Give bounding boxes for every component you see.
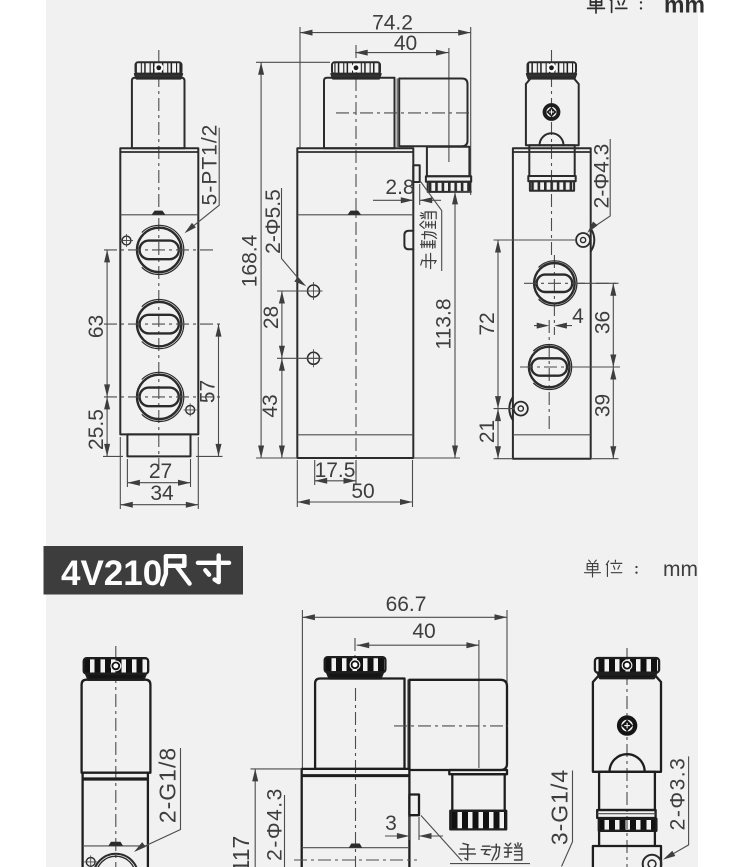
svg-text:21: 21: [476, 420, 499, 443]
svg-text:72: 72: [476, 312, 499, 335]
svg-text:mm: mm: [664, 0, 705, 18]
svg-text:40: 40: [394, 32, 417, 55]
svg-text:mm: mm: [663, 558, 698, 581]
svg-text:4V210: 4V210: [61, 554, 162, 593]
svg-text:2-G1/8: 2-G1/8: [155, 747, 181, 823]
svg-text:34: 34: [150, 482, 174, 505]
svg-text:3-G1/4: 3-G1/4: [547, 769, 573, 845]
svg-text:39: 39: [591, 394, 614, 417]
svg-text:4: 4: [572, 305, 584, 328]
svg-text:3: 3: [385, 812, 397, 835]
svg-text:63: 63: [85, 315, 108, 338]
svg-text:28: 28: [260, 306, 283, 329]
svg-text:50: 50: [351, 480, 374, 503]
svg-text:57: 57: [197, 380, 220, 403]
svg-text:2-Φ4.3: 2-Φ4.3: [264, 787, 287, 861]
svg-text:168.4: 168.4: [239, 234, 262, 287]
svg-text:2-Φ3.3: 2-Φ3.3: [667, 757, 690, 831]
svg-text:2.8: 2.8: [385, 176, 414, 199]
svg-text:43: 43: [259, 394, 282, 417]
svg-text:25.5: 25.5: [85, 409, 108, 450]
svg-text:17.5: 17.5: [315, 459, 356, 482]
svg-text:113.8: 113.8: [433, 299, 456, 350]
svg-text:5-PT1/2: 5-PT1/2: [199, 124, 222, 206]
svg-text:40: 40: [412, 620, 435, 643]
svg-text:117: 117: [228, 836, 254, 867]
svg-text:27: 27: [149, 460, 172, 483]
svg-text:66.7: 66.7: [386, 593, 427, 616]
svg-text:36: 36: [591, 311, 614, 334]
